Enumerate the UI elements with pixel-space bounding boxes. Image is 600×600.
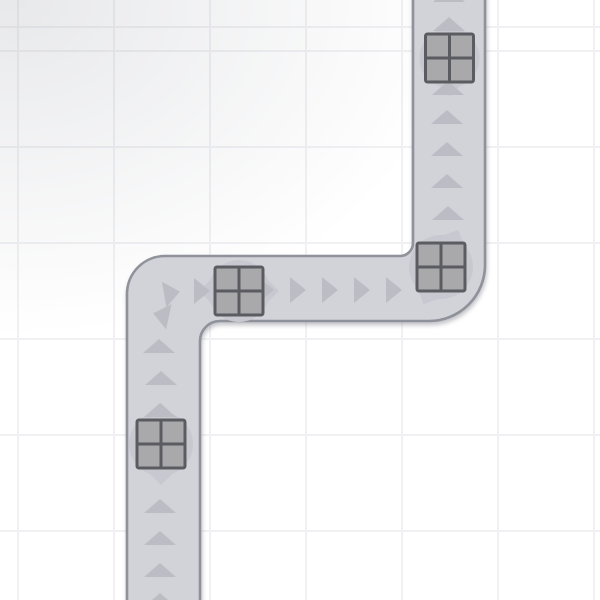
- crate[interactable]: [137, 420, 185, 468]
- game-viewport[interactable]: [0, 0, 600, 600]
- crate[interactable]: [426, 34, 474, 82]
- map-svg: [0, 0, 600, 600]
- crate[interactable]: [215, 267, 263, 315]
- crate[interactable]: [417, 243, 465, 291]
- arrow-up-icon: [433, 0, 465, 2]
